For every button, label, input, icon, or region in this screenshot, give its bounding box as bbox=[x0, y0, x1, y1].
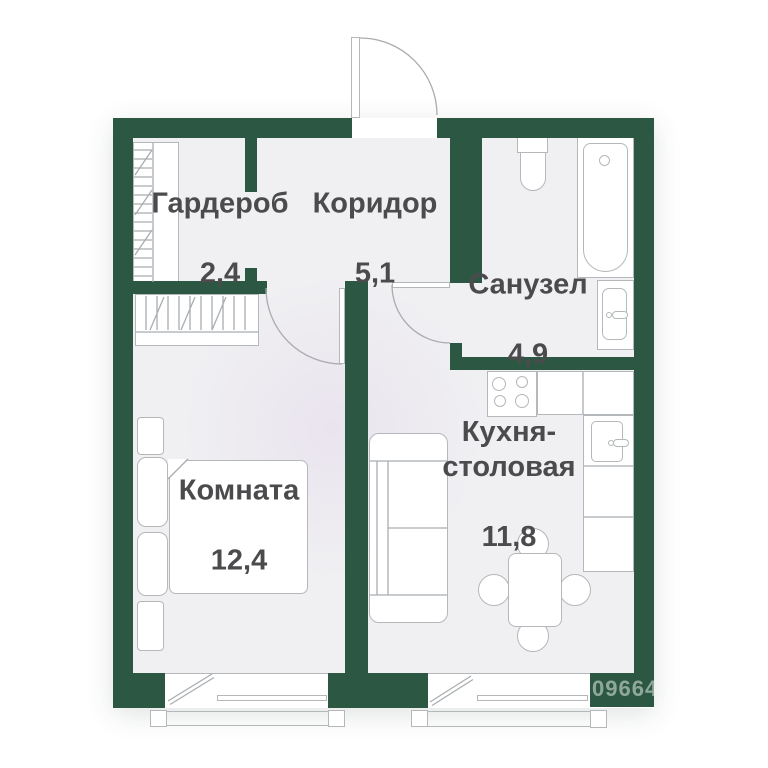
room-name: Коридор bbox=[313, 187, 438, 222]
floor-plan: 09664 Гардероб 2,4 bbox=[0, 0, 768, 768]
entrance-door-leaf bbox=[351, 37, 360, 118]
window-frame-room bbox=[217, 695, 327, 701]
balcony-door-recess-room bbox=[165, 673, 328, 708]
washbasin-faucet bbox=[612, 311, 628, 319]
room-area: 11,8 bbox=[442, 520, 575, 555]
wall-bottom-right: 09664 bbox=[590, 673, 654, 707]
room-name: Санузел bbox=[468, 268, 587, 303]
balcony-railing-room bbox=[150, 711, 345, 726]
room-area: 2,4 bbox=[151, 257, 288, 292]
pillow-2 bbox=[137, 532, 168, 596]
kitchen-faucet bbox=[613, 439, 629, 447]
wall-top-left bbox=[113, 118, 352, 138]
room-name: Гардероб bbox=[151, 187, 288, 222]
wall-bottom-left bbox=[113, 673, 165, 708]
wall-left bbox=[113, 118, 133, 708]
watermark: 09664 bbox=[592, 676, 654, 702]
room-area: 5,1 bbox=[313, 257, 438, 292]
balcony-post-1 bbox=[150, 710, 167, 727]
balcony-post-4 bbox=[590, 710, 607, 728]
room-area: 12,4 bbox=[179, 544, 299, 579]
balcony-door-recess-kitchen bbox=[428, 673, 590, 707]
room-name: Комната bbox=[179, 474, 299, 509]
pillow-1 bbox=[137, 457, 168, 527]
room-label-komnata: Комната 12,4 bbox=[179, 439, 299, 614]
washbasin-faucet-dot bbox=[606, 312, 612, 318]
balcony-post-2 bbox=[328, 710, 345, 727]
toilet-tank bbox=[517, 136, 548, 153]
wall-top-right bbox=[437, 118, 654, 138]
nightstand-bottom bbox=[137, 601, 164, 651]
room-area: 4,9 bbox=[468, 338, 587, 373]
wall-right bbox=[634, 118, 654, 673]
room-name: Кухня- столовая bbox=[442, 415, 575, 485]
toilet-bowl bbox=[520, 152, 546, 191]
wall-bottom-middle bbox=[328, 673, 428, 708]
balcony-post-3 bbox=[411, 710, 428, 727]
room-label-koridor: Коридор 5,1 bbox=[313, 152, 438, 327]
wall-bath-left-lower bbox=[450, 343, 462, 358]
room-label-kuhnya: Кухня- столовая 11,8 bbox=[442, 380, 575, 590]
nightstand-top bbox=[137, 417, 164, 455]
balcony-railing-kitchen bbox=[411, 711, 607, 727]
kitchen-faucet-dot bbox=[608, 440, 614, 446]
wall-room-divider bbox=[345, 281, 368, 673]
entrance-door-arc bbox=[360, 38, 437, 115]
room-label-garderob: Гардероб 2,4 bbox=[151, 152, 288, 327]
bathtub-drain bbox=[599, 155, 610, 166]
window-frame-kitchen bbox=[477, 695, 588, 701]
sofa bbox=[369, 433, 448, 623]
